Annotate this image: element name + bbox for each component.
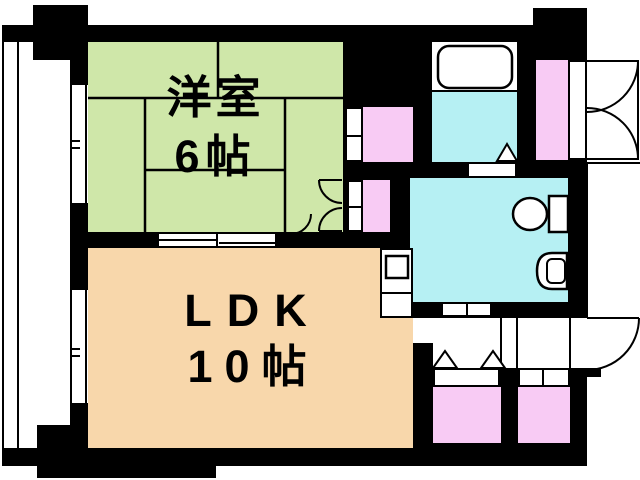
floor-plan: 洋室 6帖 LDK 10帖 [0,0,640,480]
closet-door-swing-icon [291,180,342,234]
kitchen-sink-icon [386,256,408,278]
balcony-rail [3,42,18,448]
room-western-size: 6帖 [88,134,343,179]
closet-right-door-swing-icon [587,61,638,159]
room-ldk-name: LDK [88,288,418,333]
bathtub-icon [438,46,512,88]
room-western-name: 洋室 [88,75,343,120]
toilet-bowl-icon [513,198,547,230]
door-triangle-icon [433,144,517,368]
toilet-tank-icon [549,196,568,232]
plan-linework [0,0,640,480]
entrance-door-swing-icon [501,163,640,370]
window-icon [70,85,86,403]
room-ldk-size: 10帖 [88,344,418,389]
